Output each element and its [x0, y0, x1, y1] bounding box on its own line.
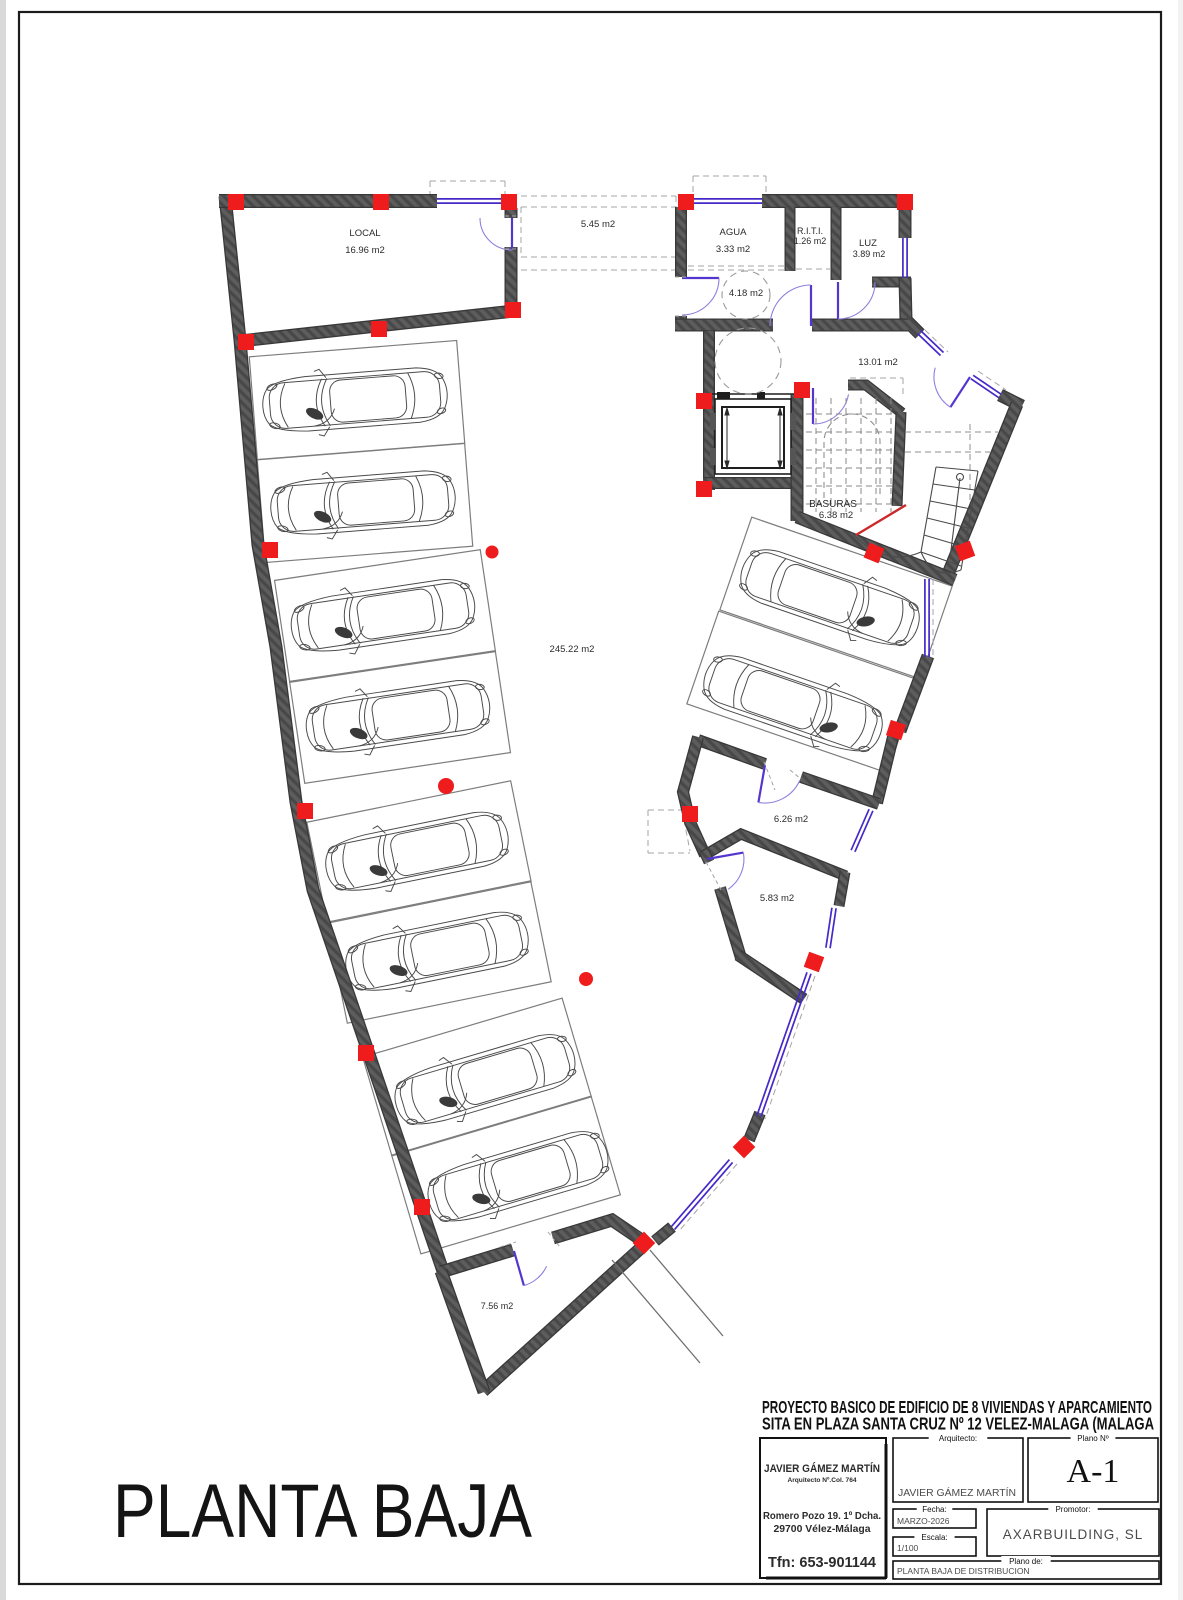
svg-text:PLANTA BAJA DE DISTRIBUCION: PLANTA BAJA DE DISTRIBUCION	[897, 1566, 1030, 1576]
svg-text:AGUA: AGUA	[720, 227, 748, 238]
svg-text:JAVIER GÁMEZ MARTÍN: JAVIER GÁMEZ MARTÍN	[764, 1462, 880, 1475]
svg-text:R.I.T.I.: R.I.T.I.	[797, 226, 823, 236]
svg-text:6.26 m2: 6.26 m2	[774, 814, 808, 825]
svg-text:3.33 m2: 3.33 m2	[716, 244, 750, 255]
svg-text:Promotor:: Promotor:	[1055, 1505, 1090, 1514]
svg-text:5.83 m2: 5.83 m2	[760, 893, 794, 904]
svg-text:MARZO-2026: MARZO-2026	[897, 1516, 950, 1526]
svg-text:6.38 m2: 6.38 m2	[819, 510, 853, 521]
svg-text:BASURAS: BASURAS	[809, 499, 857, 510]
svg-text:PLANTA BAJA: PLANTA BAJA	[113, 1469, 532, 1554]
svg-text:1.26 m2: 1.26 m2	[794, 236, 827, 246]
svg-text:Escala:: Escala:	[921, 1533, 947, 1542]
svg-text:SITA EN PLAZA SANTA CRUZ Nº 12: SITA EN PLAZA SANTA CRUZ Nº 12 VELEZ-MAL…	[762, 1414, 1154, 1434]
svg-text:245.22 m2: 245.22 m2	[550, 644, 595, 655]
svg-text:13.01 m2: 13.01 m2	[858, 357, 898, 368]
svg-text:LUZ: LUZ	[859, 238, 877, 249]
svg-text:29700 Vélez-Málaga: 29700 Vélez-Málaga	[773, 1524, 870, 1535]
svg-text:Tfn: 653-901144: Tfn: 653-901144	[768, 1555, 876, 1571]
svg-text:4.18 m2: 4.18 m2	[729, 288, 763, 299]
svg-text:3.89 m2: 3.89 m2	[853, 249, 886, 259]
svg-text:Romero Pozo 19. 1º Dcha.: Romero Pozo 19. 1º Dcha.	[763, 1511, 881, 1522]
svg-text:Plano Nº: Plano Nº	[1077, 1434, 1108, 1443]
svg-text:16.96 m2: 16.96 m2	[345, 245, 385, 256]
svg-text:Plano de:: Plano de:	[1009, 1557, 1043, 1566]
svg-text:A-1: A-1	[1067, 1453, 1120, 1490]
svg-text:5.45 m2: 5.45 m2	[581, 219, 615, 230]
svg-text:LOCAL: LOCAL	[349, 228, 380, 239]
svg-text:Arquitecto:: Arquitecto:	[939, 1434, 977, 1443]
svg-text:Arquitecto Nº.Col. 764: Arquitecto Nº.Col. 764	[787, 1477, 856, 1484]
svg-text:7.56 m2: 7.56 m2	[481, 1301, 514, 1311]
svg-text:1/100: 1/100	[897, 1543, 919, 1553]
svg-text:AXARBUILDING, SL: AXARBUILDING, SL	[1003, 1527, 1144, 1542]
svg-text:JAVIER GÁMEZ MARTÍN: JAVIER GÁMEZ MARTÍN	[898, 1486, 1016, 1499]
svg-text:Fecha:: Fecha:	[922, 1505, 946, 1514]
